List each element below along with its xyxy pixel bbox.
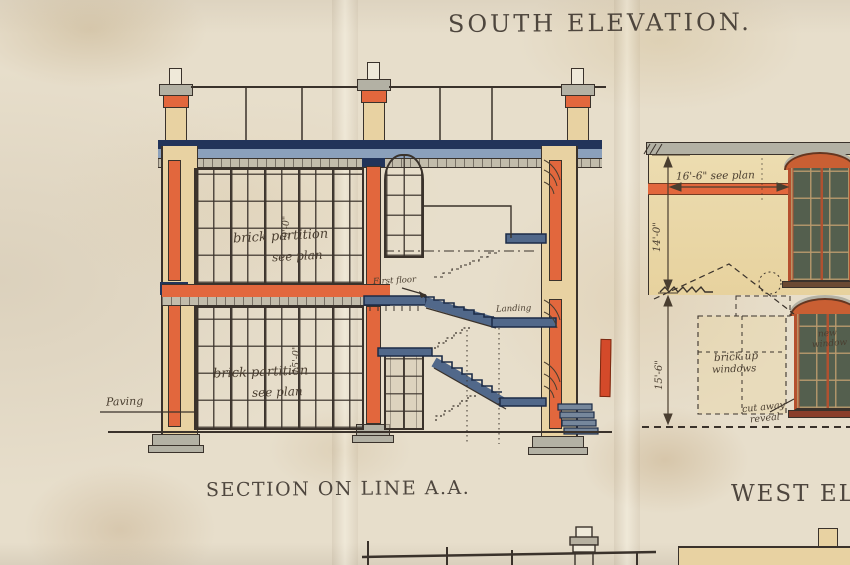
first-floor-joists xyxy=(162,297,390,306)
section-upper-height-dim: 9'-0" xyxy=(281,186,292,238)
stair-window xyxy=(384,154,424,258)
column-right-lower xyxy=(549,299,562,429)
chimney-shaft xyxy=(165,107,187,143)
red-datum-marker xyxy=(599,339,611,397)
west-lower-height-dim: 15'-6" xyxy=(654,330,665,390)
lower-drawing-lines xyxy=(362,527,656,565)
lower-drawing-parapet xyxy=(678,546,850,565)
brick-up-note-2: windows xyxy=(712,364,757,376)
chimney-shaft xyxy=(567,107,589,143)
column-left-upper xyxy=(168,160,181,281)
landing-label: Landing xyxy=(496,304,532,314)
west-lower-window-sill xyxy=(788,410,850,418)
upper-partition-note-2: see plan xyxy=(272,249,323,264)
column-right-upper xyxy=(549,160,562,281)
footing-mid-base xyxy=(352,435,394,443)
column-mid-lower xyxy=(366,306,381,424)
south-elevation-title: SOUTH ELEVATION. xyxy=(448,8,752,38)
west-upper-window-sill xyxy=(782,281,850,288)
chimney-shaft xyxy=(363,102,385,143)
lower-partition-note-2: see plan xyxy=(252,385,303,399)
section-lower-height-dim: 15'-0" xyxy=(291,324,302,374)
west-width-dim: 16'-6" see plan xyxy=(676,170,755,182)
west-upper-height-dim: 14'-0" xyxy=(652,196,663,252)
footing-left-base xyxy=(148,445,204,453)
chimney-pot xyxy=(367,62,380,80)
chimney-pot xyxy=(571,68,584,85)
chimney-pot xyxy=(169,68,182,85)
section-title: SECTION ON LINE A.A. xyxy=(206,477,470,501)
lower-drawing-pier xyxy=(818,528,838,547)
paving-label: Paving xyxy=(106,395,144,408)
drawing-sheet: SOUTH ELEVATION. SECTION ON LINE A.A. WE… xyxy=(0,0,850,565)
west-elevation-title: WEST ELEVATION. xyxy=(731,481,850,507)
upper-glazed-partition xyxy=(194,168,364,285)
west-upper-window xyxy=(788,168,850,282)
roof-beam xyxy=(158,140,602,149)
ground-floor-door xyxy=(384,354,424,430)
brick-up-note-1: brick up xyxy=(714,351,759,364)
footing-right-base xyxy=(528,447,588,455)
column-mid-upper xyxy=(366,166,381,286)
column-left-lower xyxy=(168,299,181,427)
